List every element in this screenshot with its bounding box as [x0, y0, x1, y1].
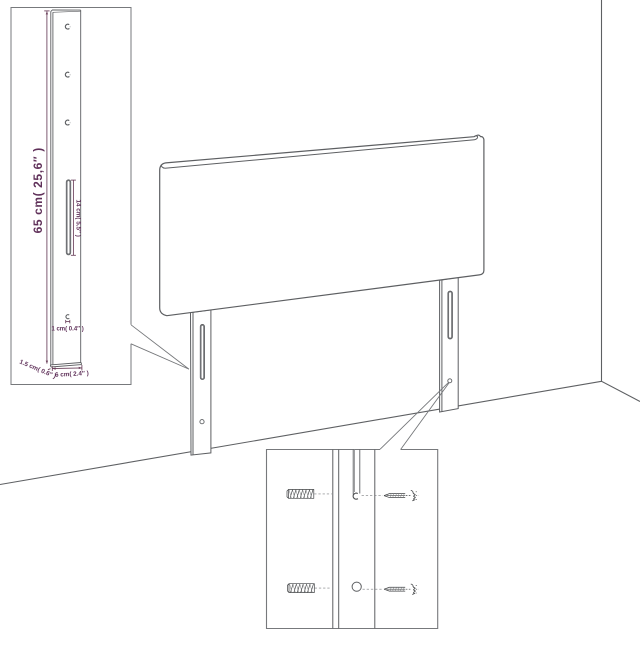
svg-text:14 cm( 5.5″ ): 14 cm( 5.5″ ) — [75, 200, 82, 237]
svg-text:65 cm( 25,6″ ): 65 cm( 25,6″ ) — [31, 147, 45, 233]
svg-text:1 cm( 0.4″ ): 1 cm( 0.4″ ) — [51, 327, 83, 333]
